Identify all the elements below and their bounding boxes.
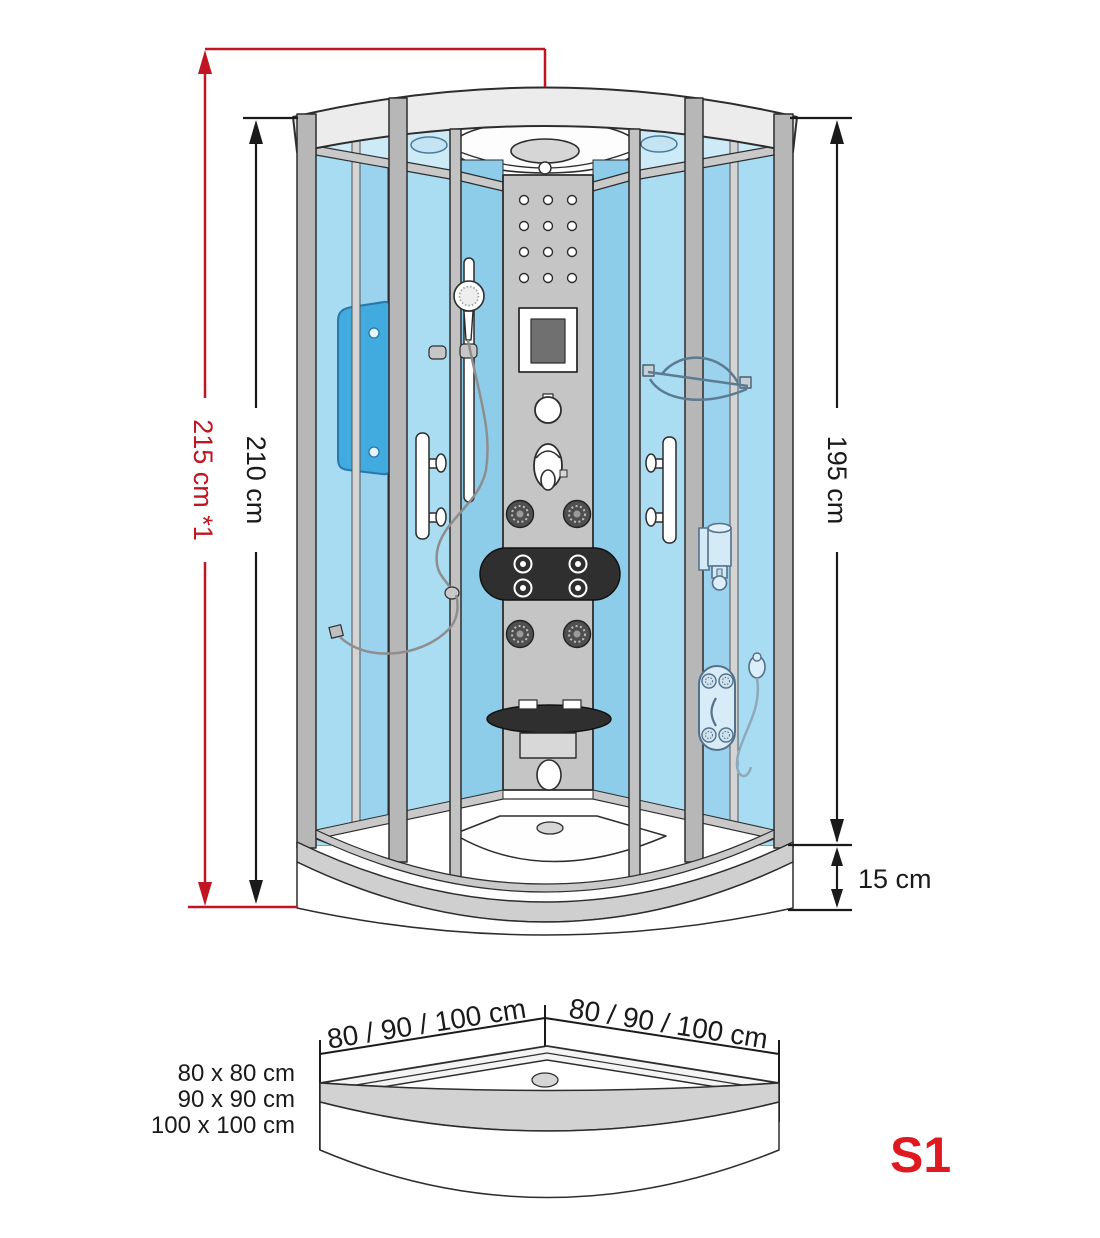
pillar-outer-left	[297, 114, 316, 848]
dimension-tray-height	[788, 845, 852, 910]
pillar-outer-right	[774, 114, 793, 848]
blue-glass-accent-panel	[338, 302, 391, 474]
label-footprint-left: 80 / 90 / 100 cm	[325, 993, 528, 1055]
model-label: S1	[890, 1127, 951, 1183]
label-interior-height: 195 cm	[822, 436, 852, 525]
display-screen	[531, 319, 565, 363]
tray-drain	[532, 1073, 558, 1087]
label-tray-height: 15 cm	[858, 864, 932, 894]
control-knob	[535, 397, 561, 423]
side-control-pad	[699, 666, 735, 750]
size-option: 90 x 90 cm	[178, 1086, 295, 1113]
panel-screw	[369, 328, 379, 338]
rain-shower-head	[511, 139, 579, 163]
pillar-door-left	[450, 129, 461, 877]
pillar-mid-left	[389, 98, 407, 862]
drain	[537, 822, 563, 834]
label-overall-height: 215 cm *1	[188, 419, 218, 541]
hose-holder	[429, 346, 446, 359]
panel-screw	[369, 447, 379, 457]
label-cabin-height: 210 cm	[241, 436, 271, 525]
size-options-list: 80 x 80 cm 90 x 90 cm 100 x 100 cm	[151, 1060, 295, 1139]
glass-mullion-left	[352, 140, 360, 835]
shower-cabin-diagram: 215 cm *1 210 cm 195 cm 15 cm	[0, 0, 1100, 1238]
corner-light-right	[641, 136, 677, 152]
back-massage-pad	[480, 548, 620, 600]
size-option: 80 x 80 cm	[178, 1060, 295, 1087]
ceiling-light	[539, 162, 551, 174]
dimension-diagram-page: 215 cm *1 210 cm 195 cm 15 cm	[0, 0, 1100, 1238]
size-option: 100 x 100 cm	[151, 1112, 295, 1139]
glass-door-right	[593, 160, 629, 845]
pillar-door-right	[629, 129, 640, 877]
corner-light-left	[411, 137, 447, 153]
shower-cabin-illustration	[293, 88, 797, 936]
pillar-mid-right	[685, 98, 703, 862]
panel-drain-cover	[537, 760, 561, 790]
label-footprint-right: 80 / 90 / 100 cm	[567, 993, 770, 1055]
